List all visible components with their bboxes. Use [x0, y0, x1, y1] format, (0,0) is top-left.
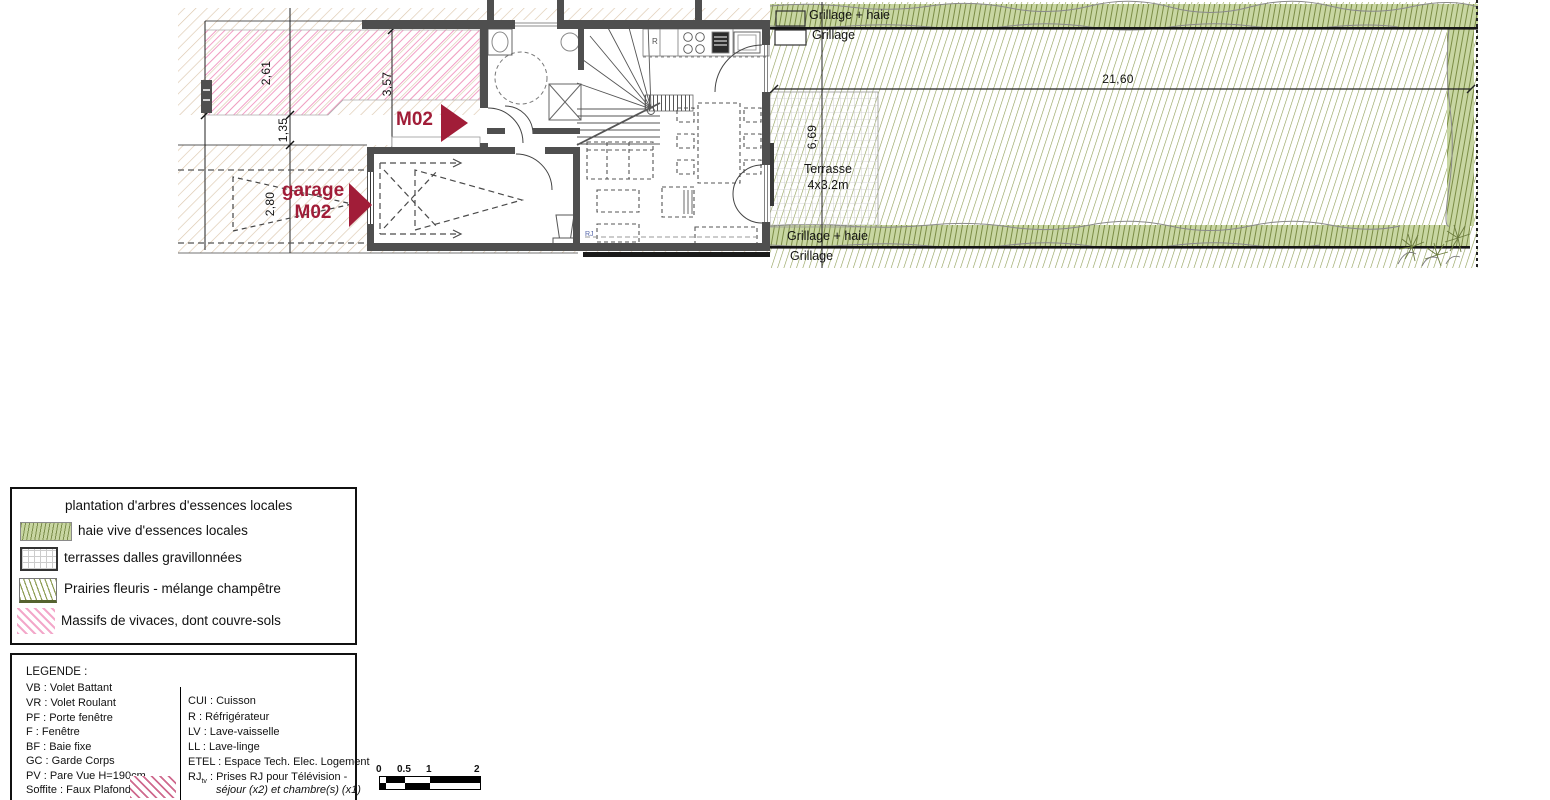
fridge-label: R: [652, 37, 658, 46]
site-plan-page: M02 garage M02 2,61 1,35 3,57 2,80 6,69 …: [0, 0, 1550, 800]
fence-label-bottom-grillage: Grillage: [790, 249, 833, 265]
scale-tick-2: 2: [474, 764, 480, 775]
dim-garden-depth: 6,69: [805, 115, 819, 159]
legend-item-massif: Massifs de vivaces, dont couvre-sols: [61, 613, 281, 628]
abbr-bf: BF : Baie fixe: [26, 741, 91, 753]
terrasse-label: Terrasse 4x3.2m: [792, 162, 864, 193]
abbr-rj-line2: séjour (x2) et chambre(s) (x1): [216, 784, 361, 796]
legend-item-hedge: haie vive d'essences locales: [78, 523, 248, 538]
abbr-ll: LL : Lave-linge: [188, 741, 260, 753]
soffite-swatch-icon: [130, 776, 176, 798]
rj-socket-label: RJ: [585, 231, 594, 238]
massif-swatch-icon: [17, 608, 55, 634]
abbr-r: R : Réfrigérateur: [188, 711, 269, 723]
fence-label-top-haie: Grillage + haie: [809, 8, 890, 24]
abbr-lv: LV : Lave-vaisselle: [188, 726, 280, 738]
scale-tick-0: 0: [376, 764, 382, 775]
garage-label-line2: M02: [276, 202, 350, 224]
radiator-grid: [645, 95, 693, 111]
rj-abbr: RJ: [188, 771, 201, 783]
dim-front-strip: 1,35: [276, 108, 290, 152]
legend-title: LEGENDE :: [26, 666, 87, 678]
gravel-grid-swatch-icon: [20, 547, 58, 571]
terrasse-label-line1: Terrasse: [792, 162, 864, 178]
garage-label: garage M02: [276, 180, 350, 224]
scale-tick-05: 0.5: [397, 764, 411, 775]
legend-item-meadow: Prairies fleuris - mélange champêtre: [64, 581, 281, 596]
garage-label-line1: garage: [276, 180, 350, 202]
legend-divider: [180, 687, 181, 800]
fence-label-top-grillage: Grillage: [812, 28, 855, 44]
abbr-cui: CUI : Cuisson: [188, 695, 256, 707]
wall-shadow-strip: [583, 252, 770, 257]
dim-entry-width: 3,57: [380, 62, 394, 106]
scale-tick-1: 1: [426, 764, 432, 775]
planting-legend-box: plantation d'arbres d'essences locales h…: [10, 487, 357, 645]
abbr-gc: GC : Garde Corps: [26, 755, 115, 767]
scale-bar-graphic: [379, 776, 481, 790]
dim-massif-width: 2,61: [259, 51, 273, 95]
fence-label-bottom-haie: Grillage + haie: [787, 229, 868, 245]
abbr-pv: PV : Pare Vue H=190cm: [26, 770, 146, 782]
dim-garden-length: 21,60: [1090, 72, 1146, 86]
unit-label-m02: M02: [396, 109, 433, 131]
terrasse-area: [768, 92, 878, 227]
legend-item-terrasse: terrasses dalles gravillonnées: [64, 550, 242, 565]
rj-text: : Prises RJ pour Télévision -: [210, 771, 347, 783]
abbr-pf: PF : Porte fenêtre: [26, 712, 113, 724]
fence-line-bottom: [770, 246, 1470, 249]
boundary-pillar: [201, 80, 212, 113]
abbreviations-legend-box: LEGENDE : VB : Volet Battant VR : Volet …: [10, 653, 357, 800]
oven-icon: [712, 32, 729, 53]
meadow-swatch-icon: [19, 578, 57, 603]
abbr-vb: VB : Volet Battant: [26, 682, 112, 694]
fence-line-top: [770, 27, 1478, 30]
dim-driveway-width: 2,80: [263, 182, 277, 226]
abbr-f: F : Fenêtre: [26, 726, 80, 738]
abbr-vr: VR : Volet Roulant: [26, 697, 116, 709]
abbr-soffite: Soffite : Faux Plafond: [26, 784, 131, 796]
terrasse-label-line2: 4x3.2m: [792, 178, 864, 194]
abbr-etel: ETEL : Espace Tech. Elec. Logement: [188, 756, 370, 768]
hedge-swatch-icon: [20, 522, 72, 541]
rj-sub: tv: [201, 778, 206, 785]
legend-item-trees: plantation d'arbres d'essences locales: [65, 498, 292, 513]
